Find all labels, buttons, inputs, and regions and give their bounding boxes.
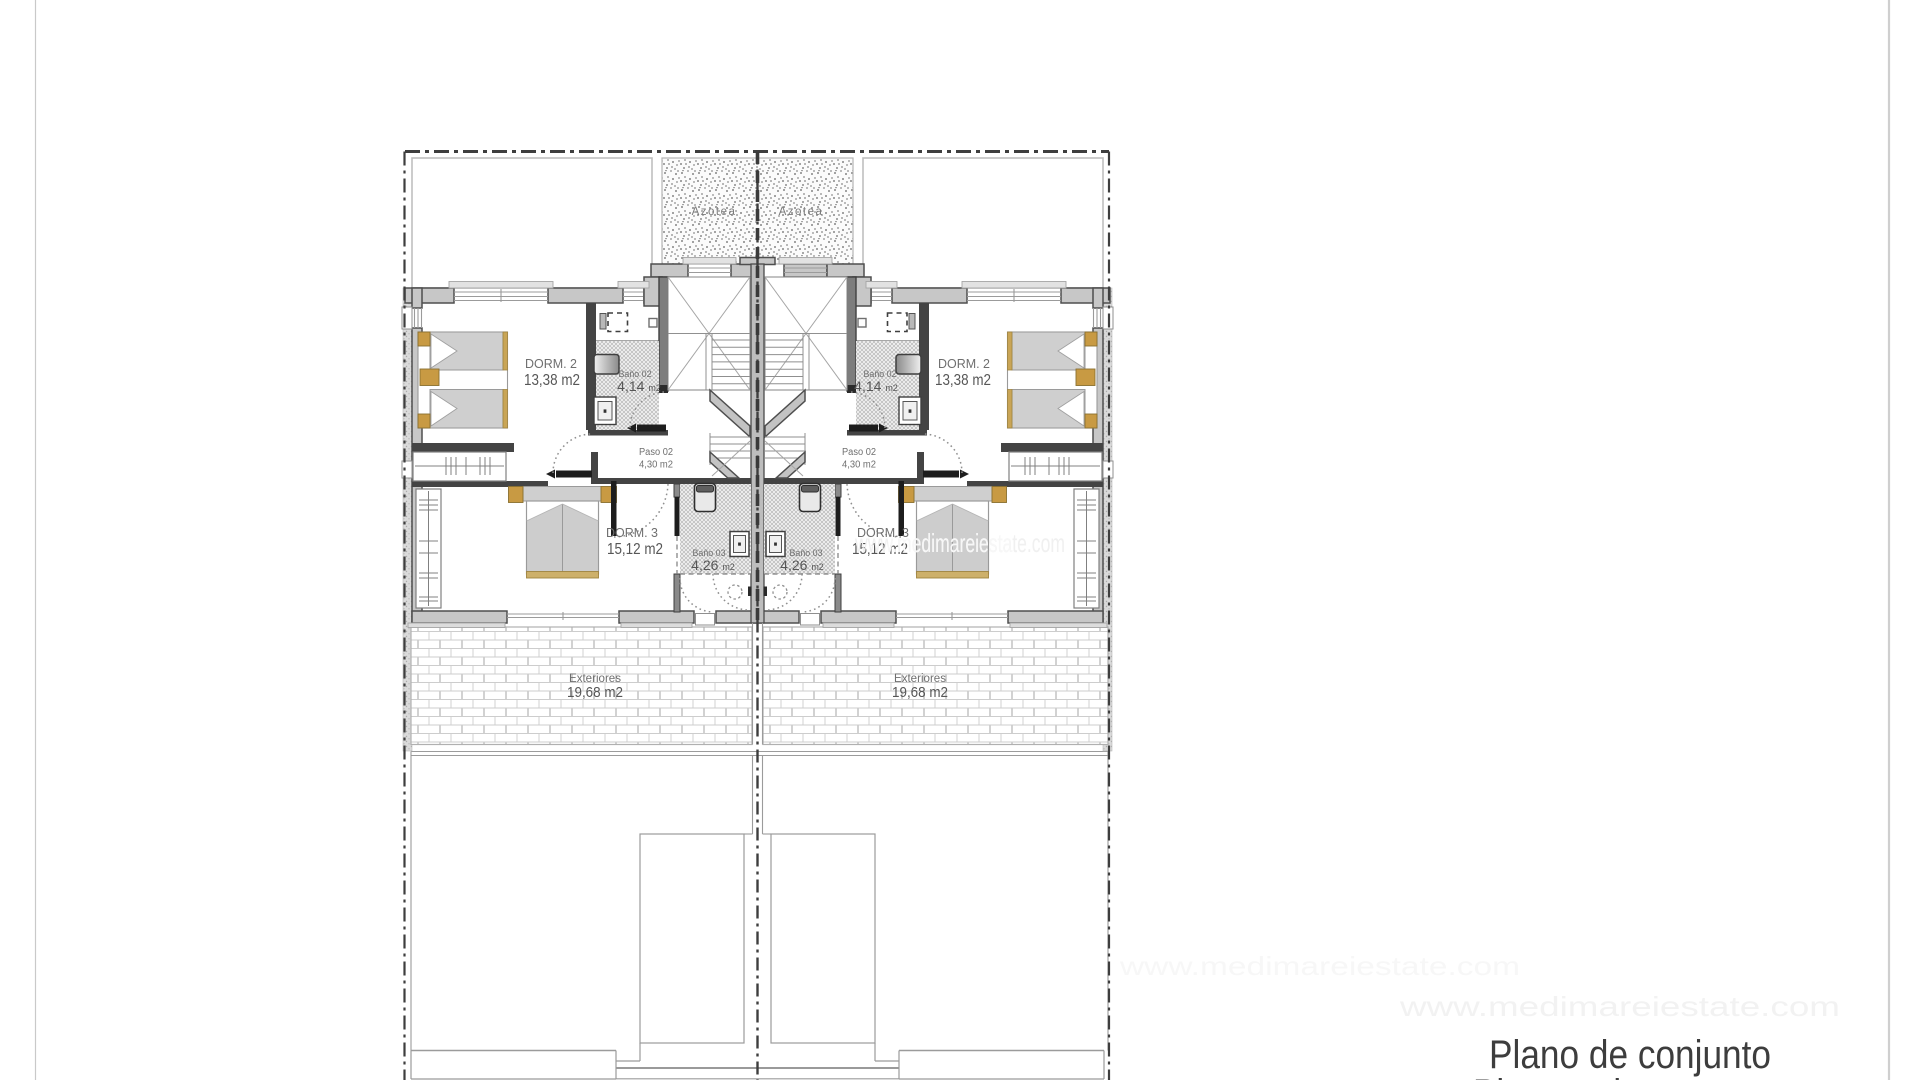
svg-text:Planta primera: Planta primera <box>1473 1073 1701 1080</box>
svg-text:15,12 m2: 15,12 m2 <box>607 541 663 558</box>
svg-text:Azotea: Azotea <box>692 206 737 218</box>
svg-text:4,30 m2: 4,30 m2 <box>842 460 876 471</box>
svg-text:4,30 m2: 4,30 m2 <box>639 460 673 471</box>
svg-text:DORM. 2: DORM. 2 <box>938 357 990 371</box>
svg-text:www.medimareiestate.com: www.medimareiestate.com <box>1399 991 1840 1022</box>
svg-text:Paso 02: Paso 02 <box>639 447 673 458</box>
svg-text:Paso 02: Paso 02 <box>842 447 876 458</box>
svg-text:Azotea: Azotea <box>779 206 824 218</box>
svg-text:www.medimareiestate.com: www.medimareiestate.com <box>1119 951 1520 981</box>
svg-text:19,68 m2: 19,68 m2 <box>567 684 623 701</box>
svg-text:DORM. 2: DORM. 2 <box>525 357 577 371</box>
svg-text:13,38 m2: 13,38 m2 <box>524 372 580 389</box>
svg-text:DORM. 3: DORM. 3 <box>606 526 658 540</box>
svg-text:13,38 m2: 13,38 m2 <box>935 372 991 389</box>
svg-text:19,68 m2: 19,68 m2 <box>892 684 948 701</box>
svg-text:Plano de conjunto: Plano de conjunto <box>1489 1033 1771 1077</box>
